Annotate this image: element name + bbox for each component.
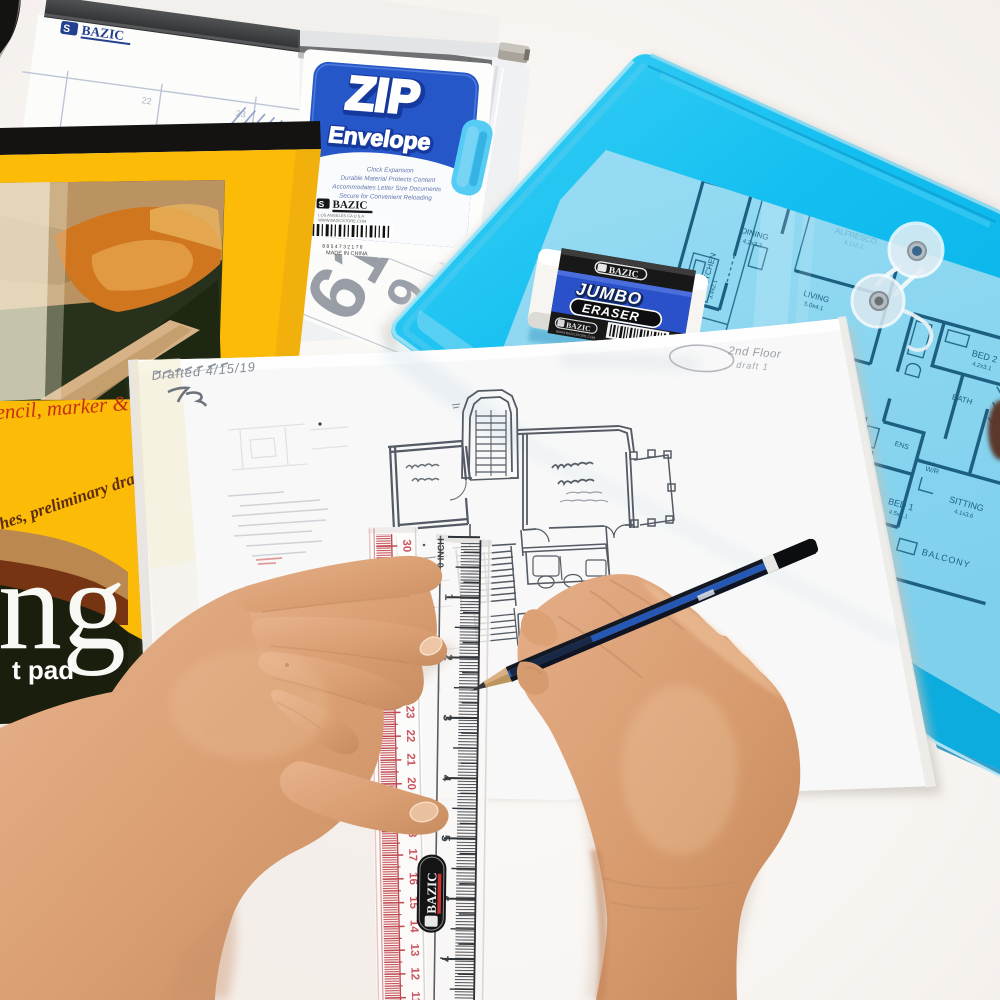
svg-text:BAZIC: BAZIC [332,199,367,212]
svg-text:0 INCH: 0 INCH [436,538,446,568]
svg-text:11: 11 [409,991,421,1000]
svg-text:t pad: t pad [12,655,74,685]
svg-text:5: 5 [439,835,453,842]
svg-text:MADE IN CHINA: MADE IN CHINA [326,250,368,257]
svg-text:4: 4 [440,775,454,782]
svg-text:22: 22 [404,729,416,742]
svg-text:S: S [318,199,324,209]
svg-text:16: 16 [407,872,419,885]
svg-text:1: 1 [442,594,456,601]
svg-text:17: 17 [406,848,418,861]
svg-text:Clock Expansion: Clock Expansion [367,166,415,174]
svg-text:7: 7 [437,955,451,962]
svg-text:ZIP: ZIP [342,66,424,124]
svg-text:22: 22 [141,95,152,106]
svg-text:21: 21 [404,753,416,767]
svg-text:23: 23 [403,706,415,719]
svg-text:13: 13 [408,943,420,956]
svg-text:3: 3 [440,714,454,721]
svg-text:BAZIC: BAZIC [424,872,440,913]
svg-text:20: 20 [405,777,417,790]
svg-text:30: 30 [400,539,412,552]
svg-text:12: 12 [408,967,420,980]
